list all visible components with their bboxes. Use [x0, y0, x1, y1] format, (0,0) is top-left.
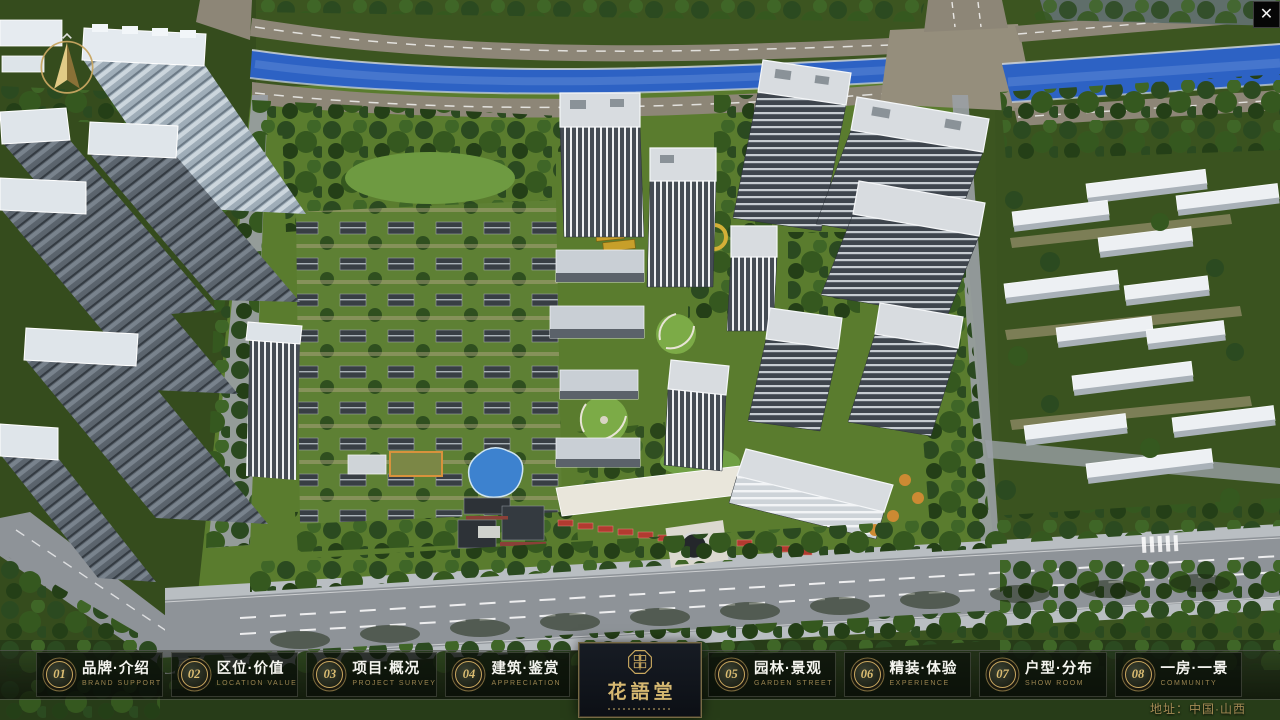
nav-number: 08 — [1132, 667, 1145, 682]
nav-number: 07 — [996, 667, 1009, 682]
close-button[interactable]: ✕ — [1253, 1, 1280, 28]
nav-number-badge: 06 — [854, 661, 881, 688]
nav-number-badge: 05 — [718, 661, 745, 688]
nav-item-brand-intro[interactable]: 01 品牌·介绍 BRAND SUPPORT — [36, 652, 163, 697]
nav-item-label: 品牌·介绍 — [82, 662, 162, 677]
nav-group-left: 01 品牌·介绍 BRAND SUPPORT 02 区位·价值 LOCATION… — [36, 652, 570, 697]
nav-number: 02 — [188, 667, 201, 682]
nav-item-architecture[interactable]: 04 建筑·鉴赏 APPRECIATION — [445, 652, 570, 697]
nav-item-room-view[interactable]: 08 一房·一景 COMMUNITY — [1115, 652, 1243, 697]
nav-group-right: 05 园林·景观 GARDEN STREET 06 精装·体验 EXPERIEN… — [708, 652, 1242, 697]
nav-item-sublabel: EXPERIENCE — [890, 680, 958, 687]
nav-number-badge: 02 — [181, 661, 208, 688]
nav-item-label: 区位·价值 — [217, 662, 298, 677]
nav-number-badge: 01 — [46, 661, 73, 688]
nav-item-sublabel: COMMUNITY — [1161, 680, 1229, 687]
nav-number-badge: 07 — [989, 661, 1016, 688]
nav-number: 01 — [53, 667, 66, 682]
nav-item-garden-landscape[interactable]: 05 园林·景观 GARDEN STREET — [708, 652, 836, 697]
nav-item-sublabel: SHOW ROOM — [1025, 680, 1093, 687]
nav-item-sublabel: PROJECT SURVEY — [352, 680, 436, 687]
nav-number-badge: 03 — [316, 661, 343, 688]
logo-seal-icon — [627, 649, 653, 675]
nav-item-label: 精装·体验 — [890, 662, 958, 677]
nav-item-sublabel: LOCATION VALUE — [217, 680, 298, 687]
nav-item-label: 项目·概况 — [352, 662, 436, 677]
logo-home-button[interactable]: 花語堂 — [578, 642, 702, 718]
nav-number: 03 — [324, 667, 337, 682]
nav-number: 06 — [861, 667, 874, 682]
address-label: 地址：中国·山西 — [1150, 700, 1246, 717]
nav-item-sublabel: BRAND SUPPORT — [82, 680, 162, 687]
compass-icon — [36, 33, 98, 95]
nav-item-decor-experience[interactable]: 06 精装·体验 EXPERIENCE — [844, 652, 972, 697]
logo-motto-microtext — [608, 708, 672, 710]
nav-number-badge: 04 — [455, 661, 482, 688]
nav-item-label: 建筑·鉴赏 — [491, 662, 561, 677]
nav-number: 04 — [463, 667, 476, 682]
nav-item-label: 一房·一景 — [1161, 662, 1229, 677]
nav-number: 05 — [725, 667, 738, 682]
nav-item-label: 户型·分布 — [1025, 662, 1093, 677]
masterplan-viewer: ✕ 01 品牌·介绍 BRAND SUPPORT 02 区位·价值 LOCATI… — [0, 0, 1280, 720]
nav-item-location-value[interactable]: 02 区位·价值 LOCATION VALUE — [171, 652, 299, 697]
logo-title: 花語堂 — [603, 677, 676, 704]
nav-item-sublabel: APPRECIATION — [491, 680, 561, 687]
nav-number-badge: 08 — [1125, 661, 1152, 688]
nav-item-unit-distribution[interactable]: 07 户型·分布 SHOW ROOM — [979, 652, 1107, 697]
nav-item-label: 园林·景观 — [754, 662, 833, 677]
nav-item-project-survey[interactable]: 03 项目·概况 PROJECT SURVEY — [306, 652, 437, 697]
masterplan-render[interactable] — [0, 0, 1280, 720]
nav-item-sublabel: GARDEN STREET — [754, 680, 833, 687]
